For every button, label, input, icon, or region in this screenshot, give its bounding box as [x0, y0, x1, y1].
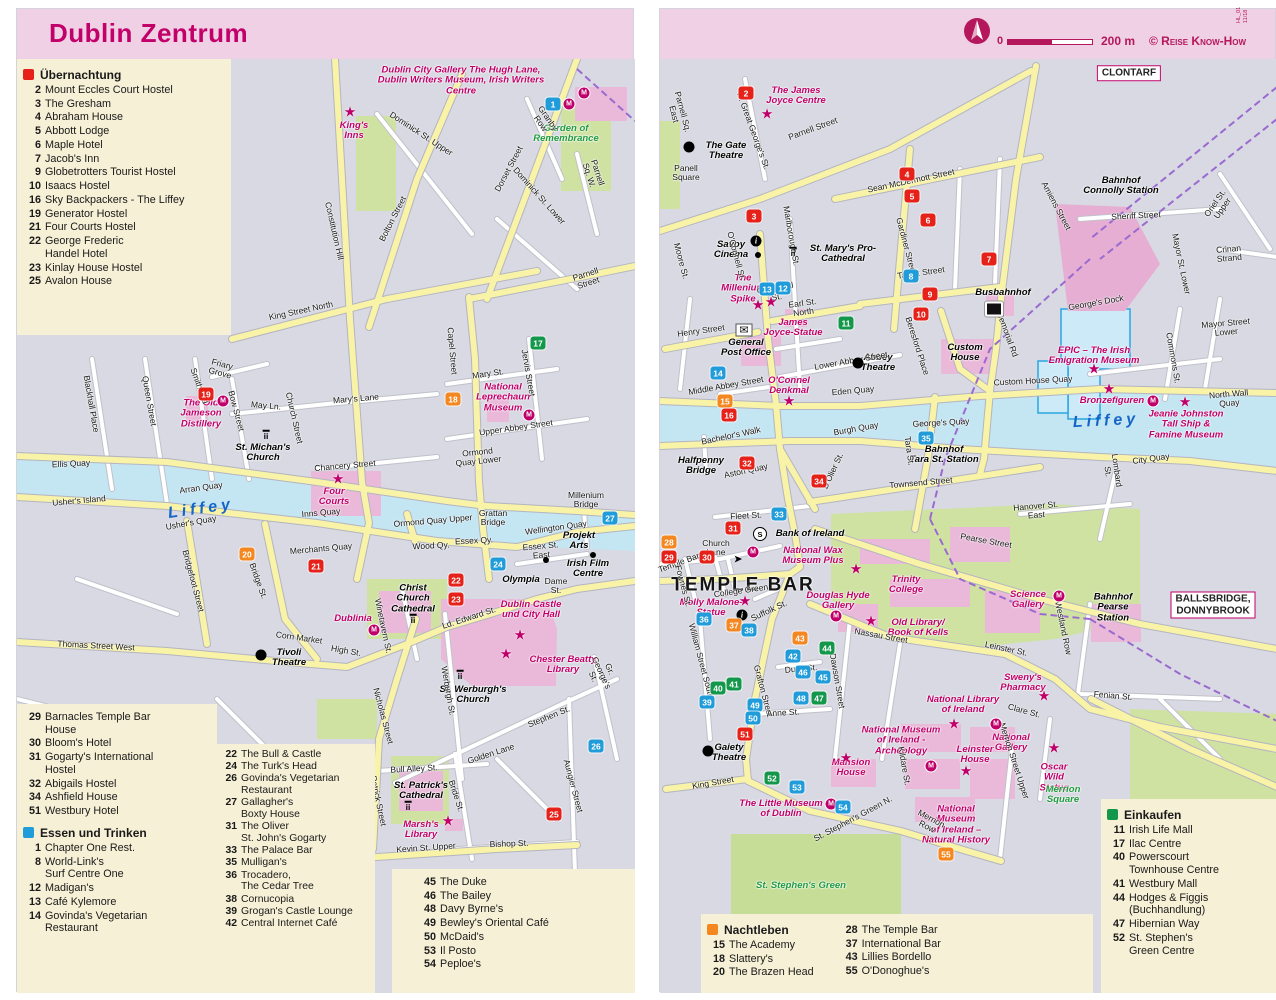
legend-item-number: 39: [219, 906, 237, 918]
legend-nightlife-title: Nachtleben: [724, 923, 789, 937]
legend-item-label: Isaacs Hostel: [45, 180, 110, 193]
poi-number-marker: 8: [904, 270, 919, 283]
metro-m-icon: M: [830, 610, 843, 623]
map-label-pk: St. Stephen's Green: [756, 881, 846, 891]
legend-item-number: 12: [23, 882, 41, 895]
legend-item-label: Maple Hotel: [45, 139, 103, 152]
legend-item-number: 7: [23, 153, 41, 166]
legend-item: 2Mount Eccles Court Hostel: [23, 84, 225, 97]
poi-dot-icon: [755, 252, 761, 258]
direction-arrow-icon: ➤: [733, 553, 742, 566]
poi-number-marker: 4: [900, 168, 915, 181]
poi-number-marker: 18: [446, 393, 461, 406]
legend-item-number: 25: [23, 275, 41, 288]
poi-number-marker: 54: [836, 801, 851, 814]
map-label-mag: King's Inns: [340, 121, 369, 142]
header-band-left: Dublin Zentrum: [17, 9, 633, 59]
legend-item: 47Hibernian Way: [1107, 918, 1271, 931]
legend-item: 21Four Courts Hostel: [23, 221, 225, 234]
poi-number-marker: 49: [748, 699, 763, 712]
legend-item-number: 16: [23, 194, 41, 207]
legend-item-number: 1: [23, 842, 41, 855]
legend-item-number: 20: [707, 966, 725, 979]
poi-number-marker: 6: [921, 214, 936, 227]
poi-number-marker: 12: [776, 282, 791, 295]
metro-m-icon: M: [368, 624, 381, 637]
legend-item: 8World-Link's Surf Centre One: [23, 856, 211, 881]
legend-item: 54Peploe's: [418, 958, 629, 971]
map-label-poi: Projekt Arts: [563, 531, 595, 552]
legend-item-number: 38: [219, 894, 237, 906]
legend-item: 22George Frederic Handel Hotel: [23, 235, 225, 260]
legend-item-number: 52: [1107, 932, 1125, 957]
map-page-left: Dublin Zentrum Übernachtung 2Mount Eccle…: [16, 8, 634, 992]
legend-item-number: 9: [23, 166, 41, 179]
map-label-mag: James Joyce-Statue: [763, 318, 822, 339]
poi-number-marker: 33: [772, 508, 787, 521]
scale-bar-filled: [1007, 39, 1051, 45]
poi-number-marker: 51: [738, 728, 753, 741]
legend-item: 11Irish Life Mall: [1107, 824, 1271, 837]
legend-item-label: The Duke: [440, 876, 487, 889]
legend-item-label: Westbury Mall: [1129, 878, 1197, 891]
legend-item-number: 2: [23, 84, 41, 97]
map-label-mag: Dublin Castle und City Hall: [501, 600, 562, 621]
legend-item: 22The Bull & Castle: [219, 749, 369, 761]
metro-m-icon: M: [747, 546, 760, 559]
legend-item: 24The Turk's Head: [219, 761, 369, 773]
legend-item-number: 53: [418, 945, 436, 958]
legend-item-number: 43: [840, 951, 858, 964]
legend-item-number: 21: [23, 221, 41, 234]
map-label-st: Grattan Bridge: [479, 509, 507, 527]
map-label-poi: General Post Office: [721, 338, 771, 359]
legend-item-label: Mount Eccles Court Hostel: [45, 84, 173, 97]
metro-m-icon: M: [1147, 395, 1160, 408]
legend-item: 13Café Kylemore: [23, 896, 211, 909]
sight-star-icon: ★: [1103, 381, 1116, 398]
legend-item-number: 35: [219, 857, 237, 869]
poi-number-marker: 34: [812, 475, 827, 488]
legend-nightlife-col1: 15The Academy18Slattery's20The Brazen He…: [707, 939, 814, 979]
city-map-left: Übernachtung 2Mount Eccles Court Hostel3…: [17, 59, 633, 991]
legend-item-number: 15: [707, 939, 725, 952]
legend-shopping-list: 11Irish Life Mall17Ilac Centre40Powersco…: [1107, 824, 1271, 957]
legend-item-label: Avalon House: [45, 275, 112, 288]
legend-item-label: Lillies Bordello: [862, 951, 932, 964]
legend-accommodation-cont: 29Barnacles Temple Bar House30Bloom's Ho…: [17, 704, 217, 993]
blue-square-icon: [23, 827, 34, 838]
bus-station-icon: [985, 302, 1003, 317]
legend-item-label: Cornucopia: [241, 894, 294, 906]
legend-item-number: 22: [219, 749, 237, 761]
poi-number-marker: 28: [662, 536, 677, 549]
map-label-poi: Bahnhof Tara St. Station: [909, 445, 978, 466]
legend-item: 25Avalon House: [23, 275, 225, 288]
legend-item: 38Cornucopia: [219, 894, 369, 906]
poi-number-marker: 44: [820, 642, 835, 655]
map-label-poi: St. Michan's Church: [235, 443, 290, 464]
poi-number-marker: 5: [905, 190, 920, 203]
legend-item: 27Gallagher's Boxty House: [219, 797, 369, 821]
map-label-st: Wood Qy.: [412, 540, 449, 551]
map-label-mag: Dublinia: [334, 614, 371, 624]
legend-item-number: 30: [23, 737, 41, 750]
theatre-icon: [256, 650, 267, 661]
theatre-icon: [703, 746, 714, 757]
map-label-mag: Four Courts: [319, 487, 350, 508]
poi-number-marker: 31: [726, 522, 741, 535]
legend-accommodation-title: Übernachtung: [40, 68, 121, 82]
legend-item-number: 18: [707, 953, 725, 966]
poi-number-marker: 32: [740, 457, 755, 470]
legend-item-label: Madigan's: [45, 882, 94, 895]
legend-item: 36Trocadero, The Cedar Tree: [219, 870, 369, 894]
poi-number-marker: 48: [794, 692, 809, 705]
scale-distance: 200 m: [1101, 34, 1135, 48]
sight-star-icon: ★: [752, 297, 765, 314]
poi-number-marker: 39: [700, 696, 715, 709]
legend-item-number: 29: [23, 711, 41, 736]
legend-item: 50McDaid's: [418, 931, 629, 944]
legend-food-col2: 22The Bull & Castle24The Turk's Head26Go…: [219, 749, 369, 930]
legend-item-number: 10: [23, 180, 41, 193]
map-label-poi: Christ Church Cathedral: [391, 584, 435, 615]
post-office-icon: ✉: [736, 324, 753, 337]
map-label-st: Dame St.: [545, 577, 568, 595]
map-label-mag: Douglas Hyde Gallery: [806, 591, 869, 612]
legend-item-number: 17: [1107, 838, 1125, 851]
legend-item: 23Kinlay House Hostel: [23, 262, 225, 275]
legend-item-label: McDaid's: [440, 931, 484, 944]
poi-number-marker: 10: [914, 308, 929, 321]
legend-item-label: Central Internet Café: [241, 918, 337, 930]
legend-item-number: 13: [23, 896, 41, 909]
header-band-right: 0 200 m © Reise Know-How HL_01 11/18: [660, 9, 1275, 59]
legend-item-label: Chapter One Rest.: [45, 842, 135, 855]
legend-item: 20The Brazen Head: [707, 966, 814, 979]
legend-item-label: Gogarty's International Hostel: [45, 751, 153, 776]
sight-star-icon: ★: [500, 646, 513, 663]
city-map-right: Nachtleben 15The Academy18Slattery's20Th…: [660, 59, 1275, 991]
legend-item-number: 32: [23, 778, 41, 791]
legend-item-number: 41: [1107, 878, 1125, 891]
map-label-st: Bishop St.: [489, 839, 528, 850]
legend-item-label: George Frederic Handel Hotel: [45, 235, 124, 260]
poi-number-marker: 43: [793, 632, 808, 645]
legend-item: 53Il Posto: [418, 945, 629, 958]
legend-item-label: Gallagher's Boxty House: [241, 797, 300, 821]
legend-item-label: Peploe's: [440, 958, 481, 971]
legend-item-label: World-Link's Surf Centre One: [45, 856, 124, 881]
map-label-st: Panell Square: [672, 164, 699, 182]
legend-accommodation-header: Übernachtung: [23, 68, 225, 82]
legend-item: 15The Academy: [707, 939, 814, 952]
legend-item-number: 50: [418, 931, 436, 944]
copyright: © Reise Know-How: [1149, 34, 1246, 48]
sight-star-icon: ★: [1038, 688, 1051, 705]
scale-zero: 0: [997, 35, 1003, 47]
sight-star-icon: ★: [948, 716, 961, 733]
legend-food-col3: 45The Duke46The Bailey48Davy Byrne's49Be…: [418, 876, 629, 971]
legend-shopping-header: Einkaufen: [1107, 808, 1271, 822]
poi-number-marker: 50: [746, 712, 761, 725]
red-square-icon: [23, 69, 34, 80]
church-icon: ii: [263, 430, 270, 441]
church-icon: ii: [457, 670, 464, 681]
sight-star-icon: ★: [1179, 394, 1192, 411]
poi-number-marker: 47: [812, 692, 827, 705]
map-page-right: 0 200 m © Reise Know-How HL_01 11/18 Nac…: [659, 8, 1276, 992]
info-icon: i: [751, 236, 762, 247]
green-square-icon: [1107, 809, 1118, 820]
map-label-mag: National Leprechaun Museum: [476, 383, 530, 414]
legend-item-number: 6: [23, 139, 41, 152]
map-label-st: Millenium Bridge: [568, 491, 604, 509]
poi-number-marker: 15: [718, 395, 733, 408]
legend-item-number: 54: [418, 958, 436, 971]
sight-star-icon: ★: [332, 471, 345, 488]
legend-item: 7Jacob's Inn: [23, 153, 225, 166]
legend-item: 14Govinda's Vegetarian Restaurant: [23, 910, 211, 935]
poi-number-marker: 16: [722, 409, 737, 422]
legend-item-label: The Academy: [729, 939, 795, 952]
legend-item-label: Four Courts Hostel: [45, 221, 136, 234]
poi-number-marker: 19: [199, 388, 214, 401]
sight-star-icon: ★: [344, 104, 357, 121]
legend-item: 32Abigails Hostel: [23, 778, 211, 791]
legend-item: 41Westbury Mall: [1107, 878, 1271, 891]
legend-item-number: 24: [219, 761, 237, 773]
legend-shopping: Einkaufen 11Irish Life Mall17Ilac Centre…: [1101, 799, 1276, 993]
legend-item-label: Bloom's Hotel: [45, 737, 111, 750]
legend-food-col2-panel: 22The Bull & Castle24The Turk's Head26Go…: [213, 744, 375, 993]
map-label-poi: Tivoli Theatre: [272, 648, 306, 669]
legend-item-label: Govinda's Vegetarian Restaurant: [241, 773, 339, 797]
map-label-poi: Busbahnhof: [975, 288, 1030, 298]
legend-item: 30Bloom's Hotel: [23, 737, 211, 750]
map-label-poi: Bahnhof Connolly Station: [1083, 176, 1158, 197]
sight-star-icon: ★: [442, 813, 455, 830]
map-label-poi: Bahnhof Pearse Station: [1094, 593, 1133, 624]
legend-item-number: 14: [23, 910, 41, 935]
theatre-icon: [684, 142, 695, 153]
legend-item-label: Hodges & Figgis (Buchhandlung): [1129, 892, 1208, 917]
legend-item-number: 44: [1107, 892, 1125, 917]
legend-item-number: 34: [23, 791, 41, 804]
legend-item-label: Il Posto: [440, 945, 476, 958]
map-label-st: Anne St.: [766, 708, 799, 719]
legend-item: 17Ilac Centre: [1107, 838, 1271, 851]
legend-item: 4Abraham House: [23, 111, 225, 124]
map-label-box: CLONTARF: [1097, 65, 1161, 81]
legend-accommodation: Übernachtung 2Mount Eccles Court Hostel3…: [17, 59, 231, 335]
legend-food-title: Essen und Trinken: [40, 826, 147, 840]
legend-item-number: 51: [23, 805, 41, 818]
theatre-icon: [853, 358, 864, 369]
sight-star-icon: ★: [783, 393, 796, 410]
map-label-mag: Science Gallery: [1010, 590, 1046, 611]
metro-m-icon: M: [1053, 590, 1066, 603]
legend-item-number: 27: [219, 797, 237, 821]
legend-item: 3The Gresham: [23, 98, 225, 111]
poi-number-marker: 7: [982, 253, 997, 266]
legend-item: 18Slattery's: [707, 953, 814, 966]
legend-item-label: Govinda's Vegetarian Restaurant: [45, 910, 147, 935]
legend-item-label: International Bar: [862, 938, 941, 951]
map-label-poi: The Gate Theatre: [706, 141, 747, 162]
legend-item-label: The Brazen Head: [729, 966, 814, 979]
map-label-poi: Gaiety Theatre: [712, 743, 746, 764]
legend-item-label: Mulligan's: [241, 857, 287, 869]
poi-number-marker: 20: [240, 548, 255, 561]
legend-item: 29Barnacles Temple Bar House: [23, 711, 211, 736]
poi-number-marker: 36: [697, 613, 712, 626]
legend-item-label: The Gresham: [45, 98, 111, 111]
scale-bar-empty: [1051, 39, 1093, 45]
poi-number-marker: 1: [546, 98, 561, 111]
map-label-poi: Irish Film Centre: [567, 559, 609, 580]
map-label-st: Earl St. North: [788, 297, 818, 319]
legend-item: 31The Oliver St. John's Gogarty: [219, 821, 369, 845]
legend-item-number: 26: [219, 773, 237, 797]
sight-star-icon: ★: [960, 763, 973, 780]
sight-star-icon: ★: [850, 561, 863, 578]
map-label-mag: The James Joyce Centre: [766, 86, 826, 107]
legend-item-label: Westbury Hotel: [45, 805, 119, 818]
sight-star-icon: ★: [1088, 361, 1101, 378]
poi-number-marker: 29: [662, 551, 677, 564]
legend-item-label: Café Kylemore: [45, 896, 116, 909]
legend-item-number: 55: [840, 965, 858, 978]
edition-code: HL_01 11/18: [1236, 7, 1249, 23]
legend-item: 5Abbott Lodge: [23, 125, 225, 138]
legend-item-number: 48: [418, 903, 436, 916]
bank-icon: S: [753, 527, 767, 541]
legend-item: 9Globetrotters Tourist Hostel: [23, 166, 225, 179]
legend-item-number: 28: [840, 924, 858, 937]
legend-item: 39Grogan's Castle Lounge: [219, 906, 369, 918]
legend-item: 10Isaacs Hostel: [23, 180, 225, 193]
legend-item: 19Generator Hostel: [23, 208, 225, 221]
legend-item-label: Slattery's: [729, 953, 773, 966]
legend-item-number: 47: [1107, 918, 1125, 931]
map-label-mag: The Little Museum of Dublin: [739, 799, 822, 820]
legend-item-label: Davy Byrne's: [440, 903, 503, 916]
page-title: Dublin Zentrum: [49, 18, 248, 49]
poi-dot-icon: [543, 557, 549, 563]
legend-item-number: 3: [23, 98, 41, 111]
poi-number-marker: 41: [727, 678, 742, 691]
sight-star-icon: ★: [761, 106, 774, 123]
poi-number-marker: 23: [449, 593, 464, 606]
church-icon: ii: [790, 247, 797, 258]
poi-number-marker: 35: [919, 432, 934, 445]
poi-number-marker: 13: [760, 283, 775, 296]
map-label-w: Liffey: [1072, 411, 1139, 432]
legend-item-number: 42: [219, 918, 237, 930]
legend-item-number: 49: [418, 917, 436, 930]
sight-star-icon: ★: [739, 593, 752, 610]
legend-item: 1Chapter One Rest.: [23, 842, 211, 855]
legend-item-label: The Turk's Head: [241, 761, 317, 773]
legend-item: 52St. Stephen's Green Centre: [1107, 932, 1271, 957]
legend-food-header: Essen und Trinken: [23, 826, 211, 840]
map-label-pk: Merrion Square: [1046, 785, 1081, 806]
legend-item-label: Ilac Centre: [1129, 838, 1181, 851]
legend-item: 37International Bar: [840, 938, 941, 951]
legend-item: 46The Bailey: [418, 890, 629, 903]
legend-item-number: 8: [23, 856, 41, 881]
compass-north-icon: [963, 15, 991, 58]
sight-star-icon: ★: [840, 750, 853, 767]
metro-m-icon: M: [578, 87, 591, 100]
legend-item-label: Hibernian Way: [1129, 918, 1199, 931]
legend-item-label: Abigails Hostel: [45, 778, 116, 791]
legend-item: 43Lillies Bordello: [840, 951, 941, 964]
legend-food-col1: 1Chapter One Rest.8World-Link's Surf Cen…: [23, 842, 211, 935]
poi-number-marker: 53: [790, 781, 805, 794]
legend-item-number: 31: [219, 821, 237, 845]
poi-number-marker: 3: [747, 210, 762, 223]
legend-item-number: 4: [23, 111, 41, 124]
poi-number-marker: 46: [796, 666, 811, 679]
metro-m-icon: M: [925, 760, 938, 773]
poi-number-marker: 11: [839, 317, 854, 330]
legend-item: 45The Duke: [418, 876, 629, 889]
legend-item: 51Westbury Hotel: [23, 805, 211, 818]
poi-number-marker: 24: [491, 558, 506, 571]
map-label-mag: Marsh's Library: [403, 820, 439, 841]
poi-number-marker: 37: [727, 619, 742, 632]
legend-item: 34Ashfield House: [23, 791, 211, 804]
map-label-st: Essex St. East: [522, 540, 559, 561]
legend-item-label: St. Stephen's Green Centre: [1129, 932, 1194, 957]
church-icon: ii: [405, 801, 412, 812]
legend-item: 28The Temple Bar: [840, 924, 941, 937]
legend-item-number: 37: [840, 938, 858, 951]
poi-number-marker: 38: [742, 624, 757, 637]
map-label-st: Lombard St.: [1101, 453, 1124, 489]
poi-number-marker: 21: [309, 560, 324, 573]
map-label-poi: St. Mary's Pro- Cathedral: [810, 244, 876, 265]
legend-item-number: 11: [1107, 824, 1125, 837]
legend-item-label: The Bailey: [440, 890, 491, 903]
legend-item-label: Abbott Lodge: [45, 125, 109, 138]
map-label-mag: Dublin City Gallery The Hugh Lane, Dubli…: [375, 66, 547, 97]
legend-item: 33The Palace Bar: [219, 845, 369, 857]
poi-number-marker: 9: [923, 288, 938, 301]
map-label-st: Fleet St.: [730, 511, 762, 522]
poi-number-marker: 27: [603, 512, 618, 525]
legend-nightlife: Nachtleben 15The Academy18Slattery's20Th…: [701, 914, 1093, 993]
legend-item-label: The Oliver St. John's Gogarty: [241, 821, 326, 845]
legend-nightlife-header: Nachtleben: [707, 923, 814, 937]
legend-item-label: Trocadero, The Cedar Tree: [241, 870, 314, 894]
legend-item-number: 23: [23, 262, 41, 275]
poi-number-marker: 17: [531, 337, 546, 350]
legend-item-number: 46: [418, 890, 436, 903]
legend-item-label: The Palace Bar: [241, 845, 313, 857]
legend-item-label: Globetrotters Tourist Hostel: [45, 166, 176, 179]
legend-item: 42Central Internet Café: [219, 918, 369, 930]
poi-number-marker: 55: [939, 848, 954, 861]
legend-item-label: Jacob's Inn: [45, 153, 99, 166]
map-label-poi: St. Patrick's Cathedral: [394, 781, 448, 802]
legend-item: 44Hodges & Figgis (Buchhandlung): [1107, 892, 1271, 917]
legend-item: 26Govinda's Vegetarian Restaurant: [219, 773, 369, 797]
legend-item-label: Bewley's Oriental Café: [440, 917, 549, 930]
